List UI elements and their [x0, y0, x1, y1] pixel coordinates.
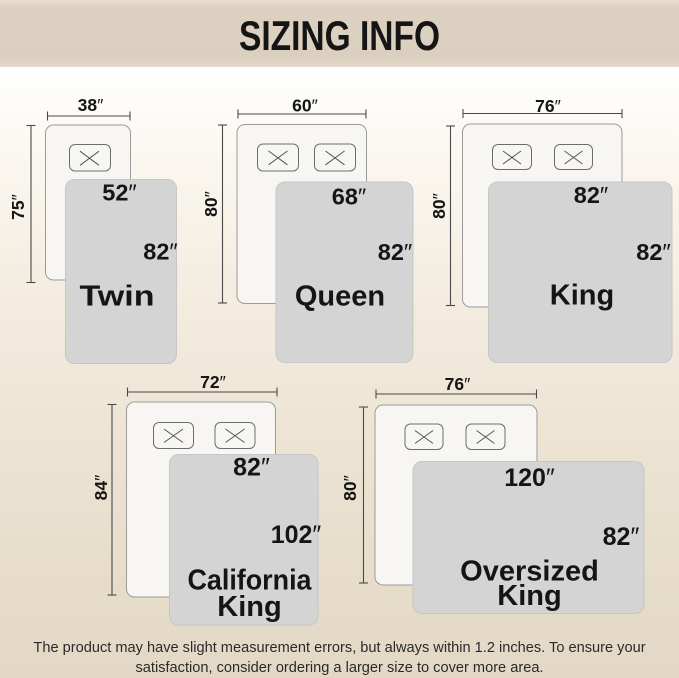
- svg-text:satisfaction, consider orderin: satisfaction, consider ordering a larger…: [135, 660, 543, 676]
- svg-text:75″: 75″: [8, 194, 28, 220]
- svg-text:SIZING INFO: SIZING INFO: [239, 12, 440, 59]
- svg-text:80″: 80″: [429, 193, 449, 219]
- svg-text:72″: 72″: [200, 372, 226, 392]
- svg-text:King: King: [550, 280, 614, 312]
- svg-text:76″: 76″: [445, 374, 471, 394]
- svg-text:82″: 82″: [233, 454, 270, 482]
- svg-text:84″: 84″: [91, 475, 111, 501]
- svg-text:68″: 68″: [332, 184, 366, 210]
- svg-text:King: King: [497, 580, 561, 612]
- svg-text:80″: 80″: [201, 191, 221, 217]
- svg-text:King: King: [217, 591, 281, 623]
- svg-text:82″: 82″: [378, 239, 412, 265]
- svg-text:38″: 38″: [78, 95, 104, 115]
- svg-text:80″: 80″: [340, 475, 360, 501]
- svg-text:76″: 76″: [535, 96, 561, 116]
- svg-text:Twin: Twin: [80, 281, 155, 313]
- svg-text:The product may have slight me: The product may have slight measurement …: [33, 640, 645, 656]
- svg-text:82″: 82″: [143, 239, 177, 265]
- svg-text:82″: 82″: [603, 523, 640, 551]
- svg-text:60″: 60″: [292, 96, 318, 116]
- svg-text:102″: 102″: [271, 521, 322, 549]
- svg-text:82″: 82″: [636, 239, 670, 265]
- svg-text:82″: 82″: [574, 182, 608, 208]
- svg-text:52″: 52″: [102, 180, 136, 206]
- svg-text:120″: 120″: [504, 464, 555, 492]
- svg-text:Queen: Queen: [295, 281, 385, 313]
